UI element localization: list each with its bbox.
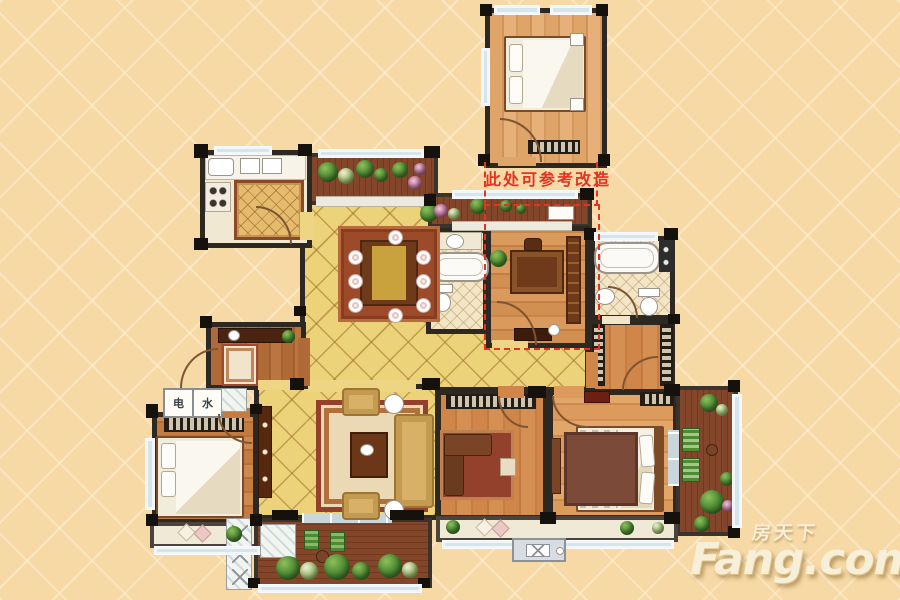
wall-pillar xyxy=(596,4,608,16)
wall-pillar xyxy=(598,154,610,166)
pillow xyxy=(639,471,656,504)
opening-entry-living xyxy=(258,380,294,390)
plant-icon xyxy=(716,404,728,416)
wall-pillar xyxy=(664,228,678,240)
stove-icon xyxy=(205,182,231,212)
plant-icon xyxy=(446,520,460,534)
nightstand xyxy=(570,98,584,111)
balcony-nw-sill xyxy=(316,196,424,207)
wardrobe xyxy=(660,324,673,386)
window xyxy=(550,5,592,15)
wall-pillar xyxy=(146,404,158,418)
wall-pillar xyxy=(294,306,306,316)
wall-pillar xyxy=(290,378,304,390)
pillow xyxy=(639,434,656,467)
wall-pillar xyxy=(728,380,740,392)
wall-pillar xyxy=(390,510,424,520)
entry-rug xyxy=(222,344,258,386)
plant-icon xyxy=(408,176,422,190)
wall-pillar xyxy=(272,510,298,520)
plant-icon xyxy=(226,526,242,542)
plant-icon xyxy=(434,204,448,218)
fang-watermark: 房天下 Fang.com xyxy=(688,512,900,600)
window xyxy=(154,546,260,555)
wall-pillar xyxy=(664,384,680,396)
window xyxy=(145,438,155,510)
wall-pillar xyxy=(298,144,312,156)
wall-pillar xyxy=(668,314,680,324)
plant-icon xyxy=(276,556,300,580)
pillow xyxy=(509,76,523,104)
kitchen-sink xyxy=(262,158,282,174)
plant-icon xyxy=(318,162,338,182)
master-balcony-slider xyxy=(668,430,679,486)
drain-icon xyxy=(556,547,564,555)
wall-pillar xyxy=(422,378,440,390)
plant-icon xyxy=(392,162,408,178)
plant-icon xyxy=(700,490,724,514)
bed-west xyxy=(156,436,244,518)
wall-pillar xyxy=(194,144,208,158)
daybed-glass xyxy=(260,524,296,558)
dining-chair xyxy=(416,274,431,289)
ac-unit-icon xyxy=(526,544,550,557)
dining-chair xyxy=(348,250,363,265)
floor-plan: 电 水 xyxy=(0,0,900,600)
dining-chair xyxy=(416,250,431,265)
wall-pillar xyxy=(540,512,556,524)
ac-platform xyxy=(512,538,566,562)
window xyxy=(732,394,742,528)
side-table xyxy=(500,458,516,476)
decor-tray xyxy=(360,444,374,456)
plant-icon xyxy=(352,562,370,580)
opening-hall-dressing xyxy=(586,352,598,388)
decor-bowl xyxy=(228,330,240,341)
toilet-icon xyxy=(638,288,660,316)
dining-chair xyxy=(348,298,363,313)
plant-icon xyxy=(356,160,374,178)
tv-cabinet xyxy=(258,406,272,498)
dining-chair xyxy=(388,230,403,245)
shoe-cabinet xyxy=(221,388,247,412)
plant-icon xyxy=(652,522,664,534)
dining-table-runner xyxy=(372,246,406,300)
electric-label: 电 xyxy=(173,395,184,411)
round-table xyxy=(706,444,718,456)
plant-icon xyxy=(282,330,295,343)
wall-pillar xyxy=(480,4,492,16)
window xyxy=(452,190,578,199)
kitchen-basin xyxy=(208,158,234,176)
lounge-cushion xyxy=(330,532,345,552)
lounge-chair xyxy=(682,428,700,452)
headboard xyxy=(654,428,664,510)
sofa-seat xyxy=(444,434,492,456)
electric-meter-box: 电 xyxy=(163,388,194,418)
wall-pillar xyxy=(194,238,208,250)
bathtub-icon xyxy=(594,242,660,274)
plant-icon xyxy=(338,168,354,184)
annotation-dashed-area xyxy=(484,204,600,350)
bath-counter xyxy=(659,240,673,272)
opening-kitchen-dining xyxy=(300,212,314,240)
plant-icon xyxy=(620,521,634,535)
window xyxy=(594,232,658,241)
armchair xyxy=(342,388,380,416)
dining-chair xyxy=(388,308,403,323)
plant-icon xyxy=(374,168,388,182)
wall-pillar xyxy=(664,512,680,524)
sofa-main xyxy=(394,414,434,508)
annotation-text: 此处可参考改造 xyxy=(468,166,628,190)
kitchen-sink xyxy=(240,158,260,174)
plant-icon xyxy=(414,163,426,175)
dining-chair xyxy=(416,298,431,313)
duvet xyxy=(176,441,240,514)
plant-icon xyxy=(300,562,318,580)
wall-pillar xyxy=(424,194,436,206)
window xyxy=(494,5,540,15)
watermark-logo: Fang.com xyxy=(690,534,900,585)
side-table-round xyxy=(384,394,404,414)
armchair xyxy=(342,492,380,520)
lounge-chair xyxy=(682,458,700,482)
window xyxy=(214,146,272,155)
wall-pillar xyxy=(250,404,262,414)
pillow xyxy=(509,44,523,72)
master-rug xyxy=(564,432,638,506)
lounge-cushion xyxy=(304,530,319,550)
plant-icon xyxy=(402,562,418,578)
dining-chair xyxy=(348,274,363,289)
window xyxy=(481,48,490,106)
sink-icon xyxy=(446,234,464,249)
window xyxy=(318,149,424,158)
nightstand xyxy=(570,33,584,46)
wall-pillar xyxy=(200,316,212,328)
plant-icon xyxy=(378,554,402,578)
wall-pillar xyxy=(250,514,262,526)
door-arc-entry xyxy=(180,348,218,388)
dresser-side xyxy=(551,438,561,494)
plant-icon xyxy=(448,208,460,220)
wall-pillar xyxy=(528,386,546,398)
plant-icon xyxy=(324,554,350,580)
window xyxy=(258,584,422,593)
pillow xyxy=(161,471,176,497)
wall-pillar xyxy=(424,146,440,158)
water-label: 水 xyxy=(202,395,213,411)
pillow xyxy=(161,443,176,469)
wall-pillar xyxy=(146,514,158,526)
